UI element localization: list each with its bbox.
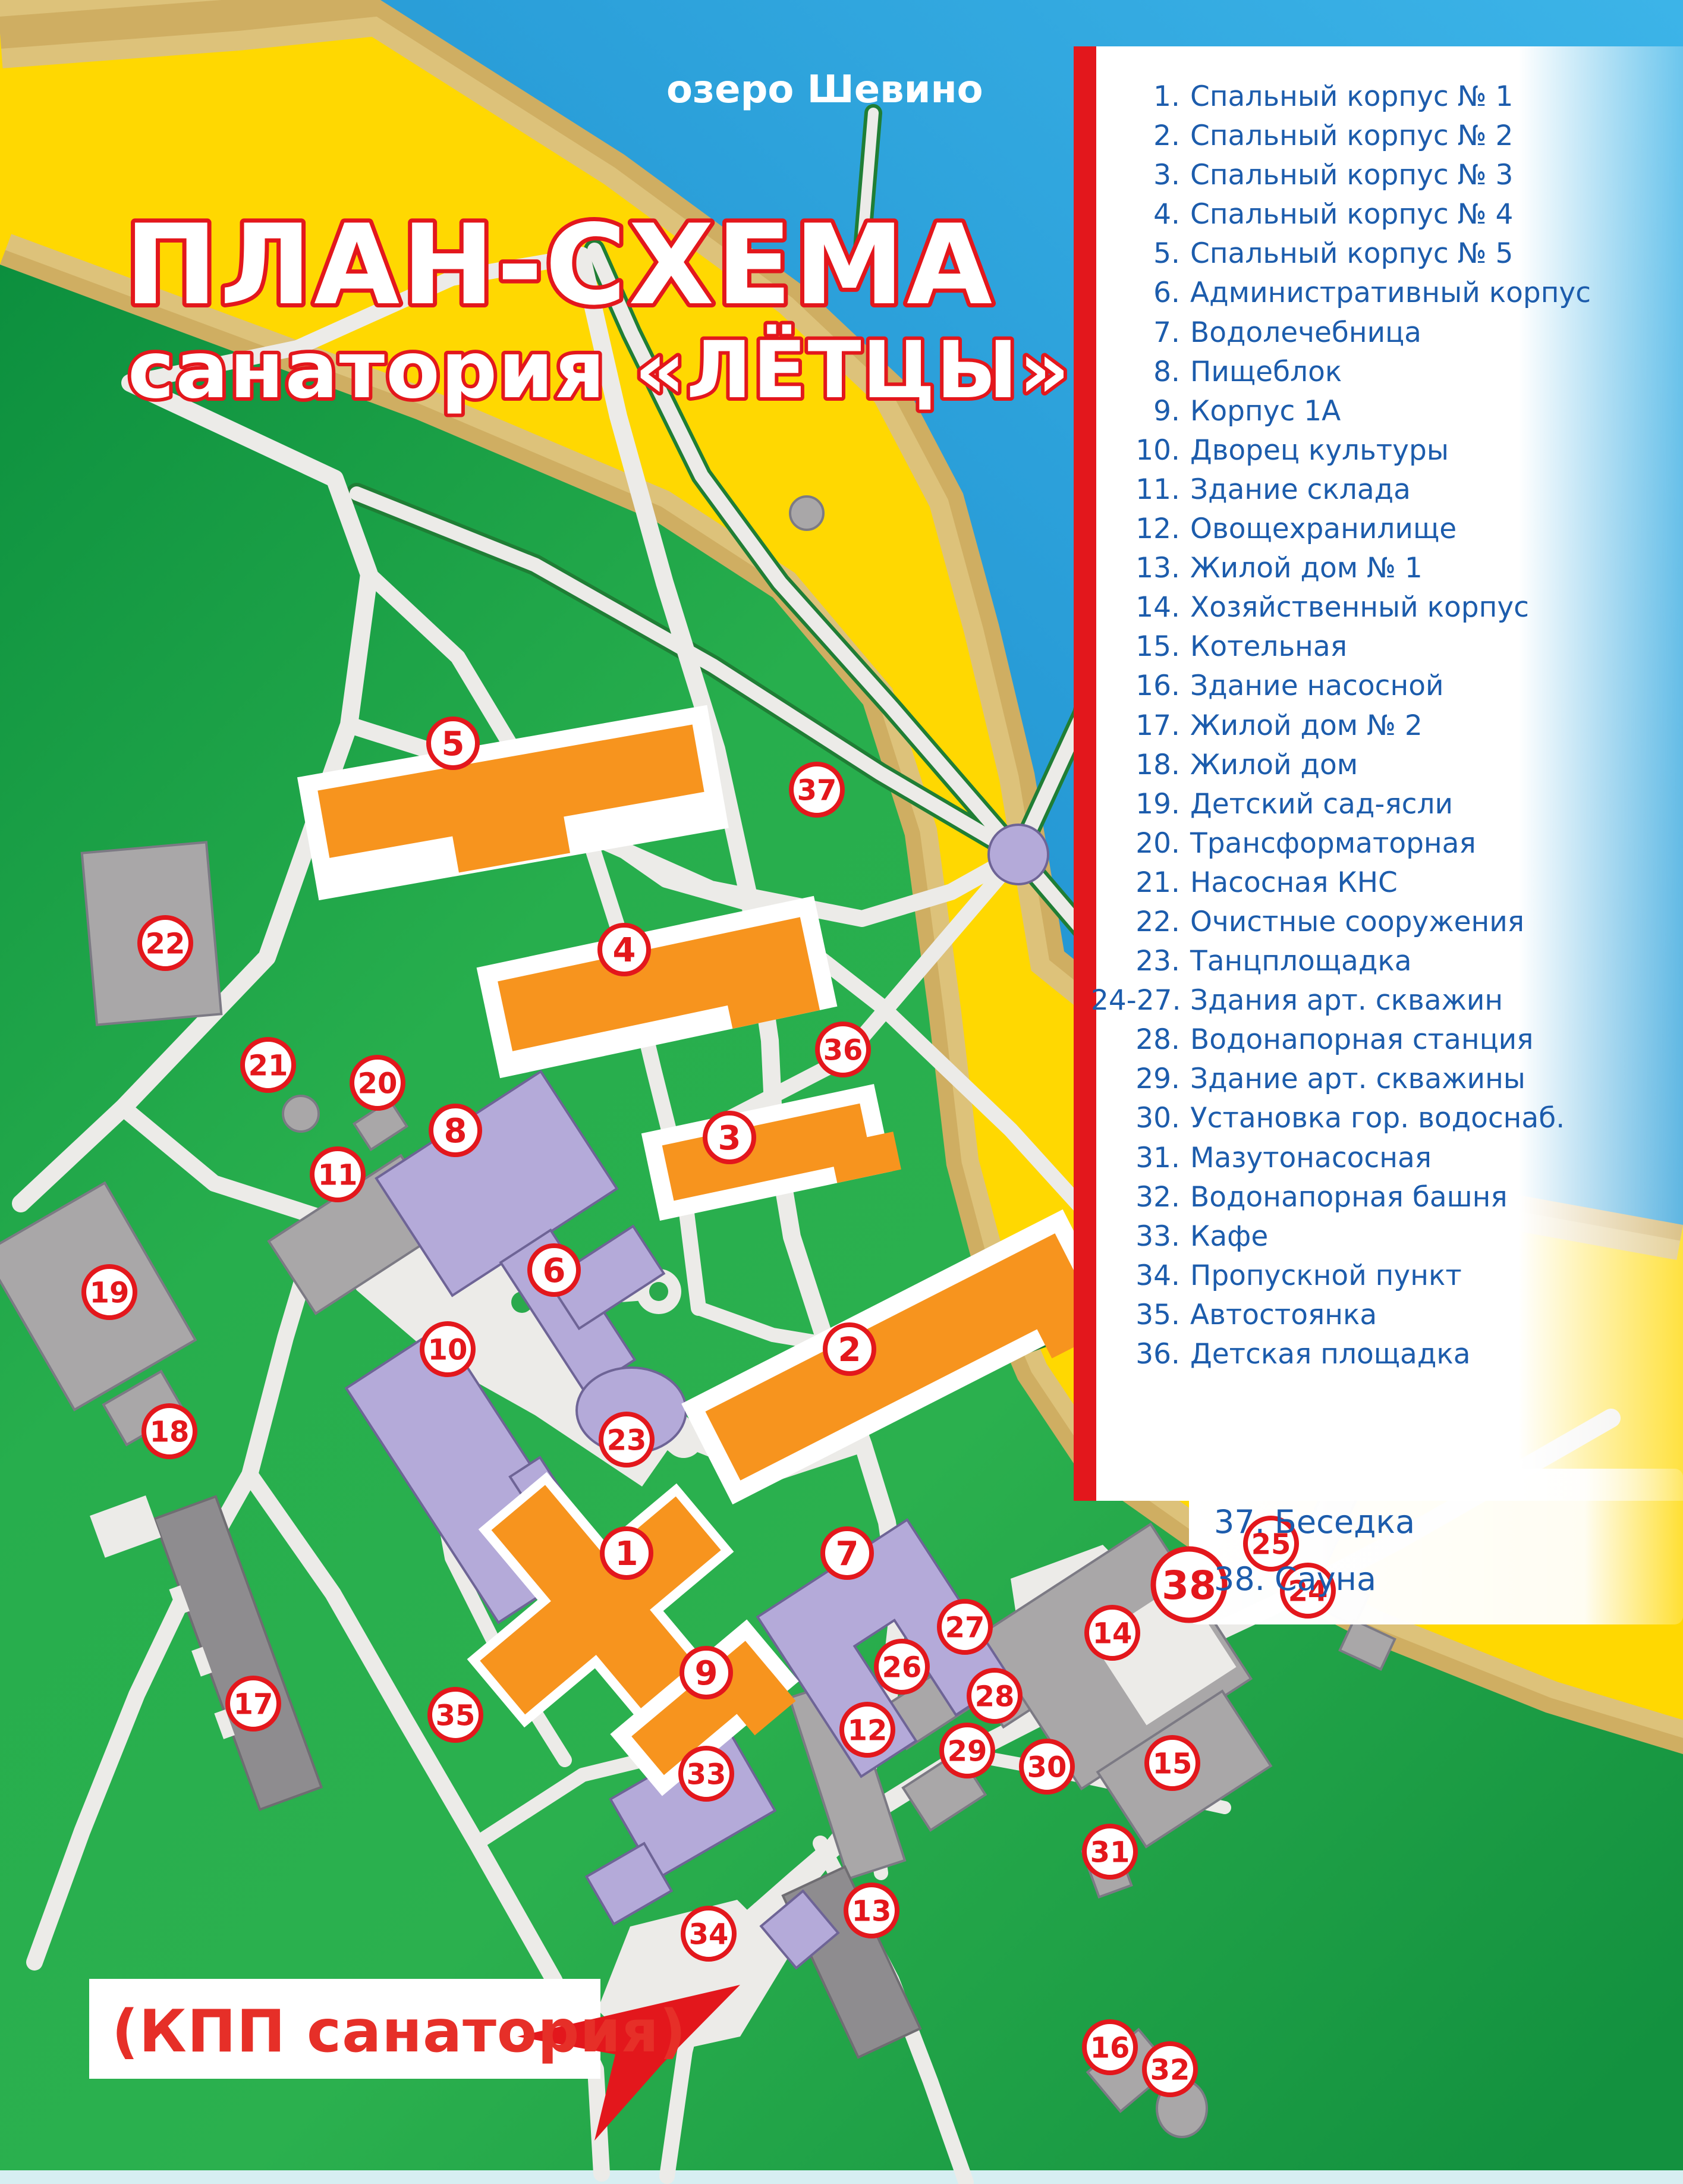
legend-item: 16.Здание насосной: [1091, 667, 1673, 706]
legend-item-label: Жилой дом № 2: [1190, 706, 1423, 746]
legend-item-number: 13.: [1091, 549, 1180, 588]
legend-item-label: Пищеблок: [1190, 353, 1342, 392]
legend-item-label: Здание склада: [1190, 470, 1411, 510]
legend-item-number: 38.: [1214, 1551, 1265, 1608]
legend-extra-item: 37.Беседка: [1214, 1494, 1415, 1551]
legend-item: 9.Корпус 1А: [1091, 392, 1673, 431]
map-marker-31: 31: [1084, 1826, 1135, 1877]
map-marker-36: 36: [817, 1024, 869, 1075]
marker-number: 15: [1153, 1747, 1193, 1780]
map-marker-15: 15: [1147, 1737, 1198, 1789]
marker-number: 11: [318, 1158, 358, 1192]
bottom-strip: [0, 2170, 1683, 2184]
legend-item-label: Пропускной пункт: [1190, 1256, 1462, 1296]
legend-item: 22.Очистные сооружения: [1091, 903, 1673, 942]
legend-item-label: Кафе: [1190, 1217, 1268, 1256]
legend-item-number: 28.: [1091, 1020, 1180, 1060]
legend-item-label: Жилой дом: [1190, 746, 1358, 785]
legend-item-number: 7.: [1091, 313, 1180, 353]
legend-item-number: 12.: [1091, 510, 1180, 549]
legend-item-number: 6.: [1091, 274, 1180, 313]
legend-item: 21.Насосная КНС: [1091, 863, 1673, 903]
marker-number: 35: [436, 1699, 476, 1732]
legend-item-label: Здание насосной: [1190, 667, 1444, 706]
legend-item-number: 4.: [1091, 195, 1180, 234]
marker-number: 2: [838, 1331, 861, 1369]
legend-item: 31.Мазутонасосная: [1091, 1139, 1673, 1178]
legend-item: 11.Здание склада: [1091, 470, 1673, 510]
legend-item: 35.Автостоянка: [1091, 1296, 1673, 1335]
map-marker-19: 19: [84, 1267, 135, 1318]
map-marker-4: 4: [600, 925, 649, 974]
legend-item-number: 15.: [1091, 627, 1180, 667]
map-marker-6: 6: [530, 1246, 578, 1294]
legend-item-number: 5.: [1091, 234, 1180, 274]
legend-item: 10.Дворец культуры: [1091, 431, 1673, 470]
legend-item-number: 36.: [1091, 1335, 1180, 1374]
marker-number: 36: [823, 1033, 863, 1067]
legend-item: 32.Водонапорная башня: [1091, 1178, 1673, 1217]
shore-pavilion-dot: [989, 825, 1048, 884]
legend-item: 2.Спальный корпус № 2: [1091, 117, 1673, 156]
marker-number: 20: [358, 1067, 398, 1100]
building-21-pump-kns: [283, 1096, 319, 1132]
marker-number: 3: [718, 1119, 741, 1158]
legend-item-number: 30.: [1091, 1099, 1180, 1138]
marker-number: 5: [442, 725, 465, 763]
map-marker-26: 26: [876, 1641, 927, 1692]
map-marker-34: 34: [683, 1908, 734, 1959]
map-marker-29: 29: [942, 1725, 993, 1776]
legend-item-number: 29.: [1091, 1060, 1180, 1099]
marker-number: 21: [248, 1049, 288, 1082]
marker-number: 22: [146, 927, 185, 960]
map-marker-10: 10: [422, 1324, 473, 1375]
marker-number: 23: [607, 1423, 647, 1457]
legend-item: 13.Жилой дом № 1: [1091, 549, 1673, 588]
marker-number: 18: [150, 1415, 190, 1448]
legend-item-number: 32.: [1091, 1178, 1180, 1217]
legend-item-label: Танцплощадка: [1190, 942, 1412, 981]
legend-item: 30.Установка гор. водоснаб.: [1091, 1099, 1673, 1138]
legend-item-number: 17.: [1091, 706, 1180, 746]
map-marker-5: 5: [429, 719, 477, 768]
legend-item-label: Сауна: [1275, 1551, 1376, 1608]
legend-item-number: 9.: [1091, 392, 1180, 431]
legend-item: 36.Детская площадка: [1091, 1335, 1673, 1374]
marker-number: 38: [1162, 1563, 1216, 1608]
map-marker-12: 12: [842, 1704, 893, 1755]
marker-number: 31: [1090, 1836, 1130, 1869]
map-marker-30: 30: [1021, 1741, 1072, 1792]
legend-item-label: Мазутонасосная: [1190, 1139, 1432, 1178]
well-dot: [790, 496, 823, 530]
legend-item: 3.Спальный корпус № 3: [1091, 156, 1673, 195]
legend-item-number: 2.: [1091, 117, 1180, 156]
map-marker-13: 13: [846, 1885, 897, 1936]
legend-item-number: 22.: [1091, 903, 1180, 942]
legend-item-label: Водонапорная башня: [1190, 1178, 1508, 1217]
legend-item-number: 31.: [1091, 1139, 1180, 1178]
marker-number: 30: [1027, 1751, 1067, 1784]
legend-item: 28.Водонапорная станция: [1091, 1020, 1673, 1060]
legend-item: 23.Танцплощадка: [1091, 942, 1673, 981]
lake-label: озеро Шевино: [666, 68, 983, 112]
legend-item: 1.Спальный корпус № 1: [1091, 77, 1673, 117]
legend-item-number: 24-27.: [1091, 981, 1180, 1020]
legend-item-label: Дворец культуры: [1190, 431, 1449, 470]
legend-item-label: Водонапорная станция: [1190, 1020, 1533, 1060]
marker-number: 9: [695, 1654, 718, 1693]
map-marker-11: 11: [312, 1149, 363, 1200]
legend-item-number: 34.: [1091, 1256, 1180, 1296]
map-marker-27: 27: [939, 1601, 990, 1652]
marker-number: 17: [234, 1688, 273, 1721]
map-marker-28: 28: [969, 1670, 1020, 1721]
legend-item: 6.Административный корпус: [1091, 274, 1673, 313]
legend-item-number: 33.: [1091, 1217, 1180, 1256]
legend-item-label: Насосная КНС: [1190, 863, 1398, 903]
map-marker-37: 37: [791, 764, 842, 815]
legend-item: 24-27.Здания арт. скважин: [1091, 981, 1673, 1020]
marker-number: 8: [444, 1112, 467, 1151]
legend-item-number: 23.: [1091, 942, 1180, 981]
legend-item: 18.Жилой дом: [1091, 746, 1673, 785]
legend-item: 12.Овощехранилище: [1091, 510, 1673, 549]
legend-item: 14.Хозяйственный корпус: [1091, 588, 1673, 627]
marker-number: 26: [882, 1651, 922, 1684]
map-marker-22: 22: [140, 917, 191, 969]
legend-item-number: 14.: [1091, 588, 1180, 627]
marker-number: 7: [836, 1535, 859, 1573]
legend-item: 5.Спальный корпус № 5: [1091, 234, 1673, 274]
legend-item-label: Здания арт. скважин: [1190, 981, 1503, 1020]
marker-number: 32: [1150, 2053, 1190, 2086]
marker-number: 10: [428, 1333, 468, 1366]
legend-item-number: 3.: [1091, 156, 1180, 195]
marker-number: 19: [90, 1276, 130, 1309]
legend-item-number: 18.: [1091, 746, 1180, 785]
legend-item-label: Овощехранилище: [1190, 510, 1456, 549]
legend-item-label: Трансформаторная: [1190, 824, 1476, 863]
legend-item-number: 16.: [1091, 667, 1180, 706]
legend-item-label: Спальный корпус № 4: [1190, 195, 1513, 234]
legend-item: 4.Спальный корпус № 4: [1091, 195, 1673, 234]
legend-item-label: Административный корпус: [1190, 274, 1591, 313]
map-marker-20: 20: [352, 1057, 403, 1108]
legend-item-number: 20.: [1091, 824, 1180, 863]
legend-item: 20.Трансформаторная: [1091, 824, 1673, 863]
map-marker-9: 9: [682, 1648, 731, 1697]
map-marker-3: 3: [705, 1113, 754, 1162]
map-marker-16: 16: [1084, 2022, 1135, 2073]
legend-item-number: 1.: [1091, 77, 1180, 117]
legend-item-label: Детская площадка: [1190, 1335, 1471, 1374]
legend-item-number: 11.: [1091, 470, 1180, 510]
map-marker-1: 1: [602, 1529, 651, 1577]
marker-number: 13: [852, 1894, 892, 1928]
marker-number: 16: [1090, 2031, 1130, 2064]
legend-item: 7.Водолечебница: [1091, 313, 1673, 353]
legend-item-label: Спальный корпус № 1: [1190, 77, 1513, 117]
legend-item: 8.Пищеблок: [1091, 353, 1673, 392]
map-marker-2: 2: [825, 1325, 874, 1374]
legend-item-label: Беседка: [1275, 1494, 1415, 1551]
marker-number: 14: [1093, 1617, 1133, 1650]
legend-item-label: Автостоянка: [1190, 1296, 1377, 1335]
marker-number: 12: [848, 1714, 888, 1747]
legend-item-label: Установка гор. водоснаб.: [1190, 1099, 1565, 1138]
marker-number: 34: [689, 1918, 729, 1951]
kpp-label: (КПП санатория): [112, 1998, 687, 2066]
map-title-line2: санатория «ЛЁТЦЫ»: [128, 324, 1071, 416]
legend-extra-list: 37.Беседка38.Сауна: [1214, 1494, 1415, 1608]
map-marker-14: 14: [1087, 1607, 1138, 1658]
legend-item-label: Очистные сооружения: [1190, 903, 1524, 942]
legend-item-label: Котельная: [1190, 627, 1347, 667]
legend-item-number: 35.: [1091, 1296, 1180, 1335]
legend-item-label: Жилой дом № 1: [1190, 549, 1423, 588]
legend-item: 17.Жилой дом № 2: [1091, 706, 1673, 746]
legend-item-label: Спальный корпус № 5: [1190, 234, 1513, 274]
map-marker-23: 23: [601, 1414, 652, 1465]
marker-number: 29: [948, 1734, 987, 1768]
legend-item-label: Здание арт. скважины: [1190, 1060, 1525, 1099]
legend-item-label: Хозяйственный корпус: [1190, 588, 1529, 627]
legend-item-number: 37.: [1214, 1494, 1265, 1551]
marker-number: 33: [687, 1758, 726, 1791]
legend-item: 15.Котельная: [1091, 627, 1673, 667]
legend-item-number: 19.: [1091, 785, 1180, 824]
map-marker-35: 35: [430, 1689, 481, 1740]
map-title-line1: ПЛАН-СХЕМА: [125, 200, 995, 329]
legend-extra-item: 38.Сауна: [1214, 1551, 1415, 1608]
legend-item: 19.Детский сад-ясли: [1091, 785, 1673, 824]
map-marker-32: 32: [1144, 2044, 1196, 2095]
map-marker-18: 18: [144, 1406, 195, 1457]
legend-item-label: Спальный корпус № 3: [1190, 156, 1513, 195]
legend-item: 34.Пропускной пункт: [1091, 1256, 1673, 1296]
legend-item-label: Спальный корпус № 2: [1190, 117, 1513, 156]
marker-number: 1: [615, 1535, 638, 1573]
legend-item: 33.Кафе: [1091, 1217, 1673, 1256]
legend-item-number: 10.: [1091, 431, 1180, 470]
marker-number: 6: [543, 1252, 566, 1290]
marker-number: 27: [945, 1611, 985, 1644]
legend-item-number: 21.: [1091, 863, 1180, 903]
legend-list: 1.Спальный корпус № 12.Спальный корпус №…: [1091, 77, 1673, 1374]
legend-item-label: Водолечебница: [1190, 313, 1421, 353]
legend-item: 29.Здание арт. скважины: [1091, 1060, 1673, 1099]
legend-item-label: Детский сад-ясли: [1190, 785, 1453, 824]
marker-number: 37: [797, 774, 837, 807]
map-marker-21: 21: [243, 1039, 294, 1091]
map-marker-7: 7: [823, 1529, 872, 1577]
legend-item-label: Корпус 1А: [1190, 392, 1341, 431]
legend-item-number: 8.: [1091, 353, 1180, 392]
map-marker-8: 8: [431, 1106, 480, 1155]
marker-number: 28: [975, 1680, 1015, 1713]
map-marker-17: 17: [228, 1678, 279, 1729]
map-marker-33: 33: [681, 1748, 732, 1799]
marker-number: 4: [613, 931, 636, 970]
